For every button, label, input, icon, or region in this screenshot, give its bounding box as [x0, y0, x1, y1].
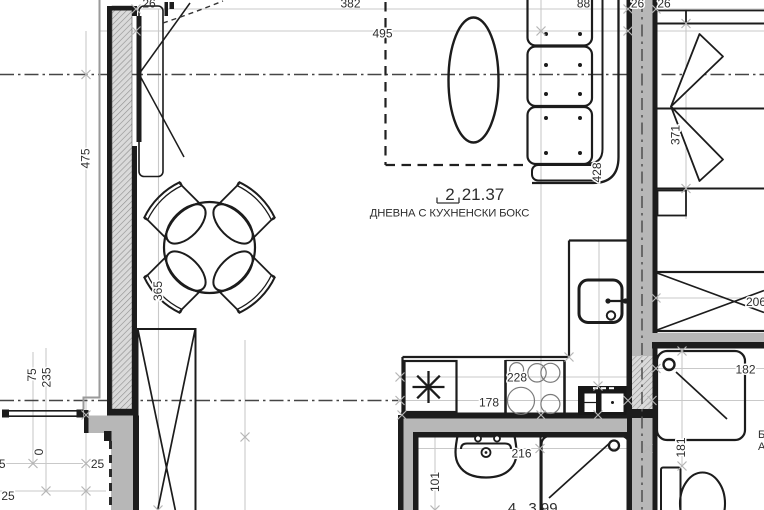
svg-text:А: А — [758, 441, 764, 453]
svg-text:0: 0 — [32, 448, 46, 455]
svg-text:181: 181 — [674, 437, 688, 457]
svg-text:365: 365 — [151, 281, 165, 301]
svg-text:371: 371 — [669, 125, 683, 145]
svg-text:216: 216 — [511, 447, 531, 461]
svg-text:101: 101 — [428, 472, 442, 492]
svg-text:21.37: 21.37 — [462, 185, 505, 204]
svg-text:382: 382 — [340, 0, 360, 11]
svg-text:25: 25 — [0, 457, 6, 471]
svg-text:26: 26 — [657, 0, 671, 11]
svg-text:475: 475 — [79, 148, 93, 168]
svg-text:26: 26 — [631, 0, 645, 11]
svg-text:495: 495 — [372, 27, 392, 41]
svg-text:26: 26 — [142, 0, 156, 11]
svg-text:25: 25 — [1, 489, 15, 503]
svg-text:235: 235 — [40, 367, 54, 387]
svg-text:228: 228 — [507, 371, 527, 385]
svg-text:25: 25 — [91, 457, 105, 471]
svg-text:206: 206 — [746, 295, 764, 309]
svg-text:182: 182 — [735, 363, 755, 377]
svg-text:2: 2 — [445, 185, 454, 204]
svg-text:88: 88 — [577, 0, 591, 11]
svg-text:Б: Б — [758, 429, 764, 441]
svg-text:ДНЕВНА С КУХНЕНСКИ БОКС: ДНЕВНА С КУХНЕНСКИ БОКС — [370, 208, 530, 220]
svg-text:428: 428 — [590, 162, 604, 182]
svg-text:4: 4 — [508, 500, 516, 510]
svg-text:75: 75 — [25, 368, 39, 382]
svg-text:178: 178 — [479, 396, 499, 410]
svg-text:3.99: 3.99 — [528, 500, 557, 510]
